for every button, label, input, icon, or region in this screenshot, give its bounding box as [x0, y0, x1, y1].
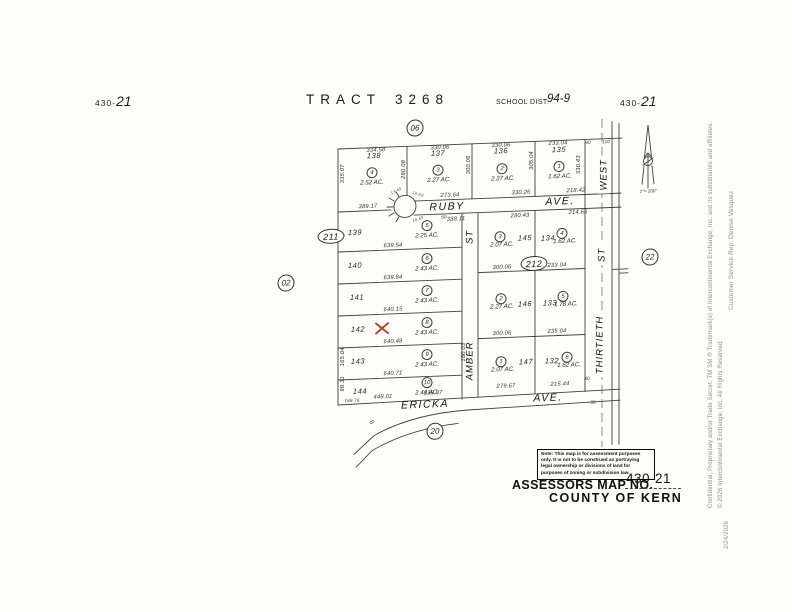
dimension-label: 235.04 — [548, 328, 567, 335]
parcel-acreage: 2.27 AC. — [490, 303, 514, 311]
dimension-label: 338.87 — [424, 390, 443, 397]
dimension-label: 160.03 — [461, 343, 467, 362]
parcel-acreage: 2.52 AC. — [360, 179, 384, 187]
thirtieth-st-edges — [612, 121, 628, 445]
parcel-acreage: 2.43 AC. — [415, 361, 439, 369]
dimension-label: 279.67 — [497, 383, 516, 390]
parcel-acreage: 1.78 AC. — [554, 300, 578, 308]
dimension-label: 169.76 — [344, 397, 359, 403]
sheet-prefix: 430- — [95, 98, 116, 108]
dimension-label: 640.15 — [384, 306, 403, 313]
parcel-acreage: 2.25 AC. — [415, 232, 439, 240]
lot-number: 146 — [518, 299, 532, 309]
map-number-underline — [625, 488, 681, 489]
dimension-label: 273.64 — [441, 192, 460, 199]
dimension-label: 300.06 — [493, 264, 512, 271]
dimension-label: 280.43 — [511, 213, 530, 220]
cul-de-sac — [394, 195, 416, 218]
sheet-number-left: 430-21 — [95, 93, 132, 111]
county-label: COUNTY OF KERN — [549, 491, 682, 505]
street-thirtieth: THIRTIETH — [595, 313, 606, 378]
parcel-acreage: 2.07 AC. — [491, 366, 515, 374]
dimension-label: 330.26 — [512, 190, 531, 197]
dimension-label: 640.71 — [384, 370, 403, 377]
assessor-map-page: 430-21 TRACT3268 SCHOOL DIST. 94-9 430-2… — [0, 0, 792, 612]
dimension-label: 338.11 — [447, 216, 466, 223]
lot-number: 141 — [350, 292, 364, 302]
street-ericka-ave: AVE. — [533, 391, 562, 404]
street-ruby: RUBY — [429, 200, 464, 213]
lot-number: 143 — [351, 356, 365, 366]
lot-number: 144 — [353, 386, 367, 396]
parcel-acreage: 2.27 AC. — [427, 176, 451, 184]
north-arrow — [642, 153, 654, 188]
customer-service-rep: Customer Service Rep: Denise Vasquez — [728, 191, 735, 310]
dimension-label: 389.17 — [359, 203, 378, 210]
dimension-label: 215.44 — [551, 381, 570, 388]
street-ericka: ERICKA — [401, 398, 449, 412]
map-linework — [258, 91, 678, 482]
dimension-label: 305.04 — [529, 151, 535, 170]
dimension-label: 98.31 — [340, 376, 346, 392]
street-west: WEST — [599, 156, 610, 194]
lot-number: 147 — [519, 357, 533, 367]
legal-text-1: Confidential, Proprietary and/or Trade S… — [708, 122, 714, 508]
parcel-acreage: 2.43 AC. — [415, 265, 439, 273]
parcel-acreage: 2.07 AC. — [490, 241, 514, 249]
dimension-label: 40 — [584, 376, 590, 381]
dimension-label: 448.01 — [374, 394, 393, 401]
dimension-label: 300.06 — [493, 330, 512, 337]
dimension-label: 110 — [602, 139, 610, 144]
dimension-label: 40 — [585, 140, 591, 145]
parcel-acreage: 2.27 AC. — [491, 175, 515, 183]
dimension-label: 330.06 — [431, 144, 450, 151]
parcel-acreage: 2.43 AC. — [415, 329, 439, 337]
street-ruby-ave: AVE. — [545, 195, 574, 208]
dimension-label: 330.06 — [492, 142, 511, 149]
dimension-label: 639.84 — [384, 274, 403, 281]
parcel-acreage: 1.62 AC. — [557, 361, 581, 369]
dimension-label: 300.06 — [466, 155, 472, 174]
red-x-marker — [376, 323, 388, 333]
sheet-num: 21 — [116, 93, 132, 109]
cul-de-sac-ticks — [387, 192, 399, 222]
dimension-label: 165.04 — [340, 347, 346, 366]
dimension-label: 233.04 — [548, 262, 567, 269]
parcel-acreage: 1.62 AC. — [553, 237, 577, 245]
dimension-label: 280.08 — [401, 160, 407, 179]
street-amber-st: ST — [465, 227, 476, 248]
north-scale-label: 1"= 200' — [640, 188, 657, 194]
dimension-label: 639.54 — [384, 242, 403, 249]
dimension-label: 218.42 — [567, 187, 586, 194]
lot-number: 139 — [348, 228, 362, 238]
parcel-acreage: 2.43 AC. — [415, 297, 439, 305]
legal-text-2: © 2026 Intercontinental Exchange, Inc. A… — [718, 340, 724, 508]
dimension-label: 335.07 — [340, 164, 346, 183]
dimension-label: 214.66 — [569, 209, 588, 216]
lot-number: 140 — [348, 261, 362, 271]
lot-number: 145 — [518, 233, 532, 243]
dimension-label: 30 — [590, 400, 596, 405]
dimension-label: 334.58 — [367, 147, 386, 154]
street-thirtieth-st: ST — [597, 245, 608, 266]
dimension-label: 640.48 — [384, 338, 403, 345]
lot-number: 142 — [351, 324, 365, 334]
north-arrow-spike — [645, 125, 652, 157]
print-date: 2/24/2026 — [724, 521, 730, 549]
dimension-label: 330.43 — [576, 155, 582, 174]
parcel-acreage: 1.62 AC. — [548, 173, 572, 181]
assessors-map-number: 430-21 — [626, 471, 671, 486]
dimension-label: 233.04 — [549, 140, 568, 147]
